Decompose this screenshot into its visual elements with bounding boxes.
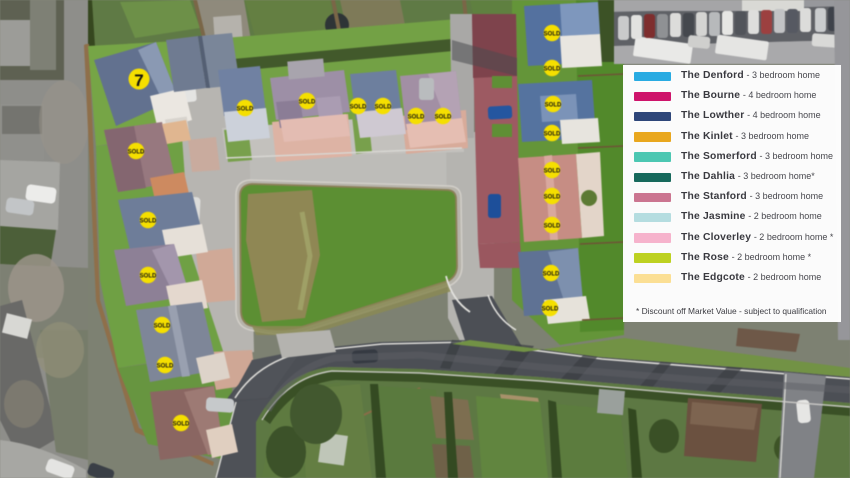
svg-text:SOLD: SOLD xyxy=(237,107,254,113)
svg-text:SOLD: SOLD xyxy=(544,195,561,201)
svg-text:SOLD: SOLD xyxy=(375,105,392,111)
svg-text:SOLD: SOLD xyxy=(173,422,190,428)
svg-text:SOLD: SOLD xyxy=(542,307,559,313)
svg-text:SOLD: SOLD xyxy=(154,324,171,330)
svg-text:SOLD: SOLD xyxy=(299,100,316,106)
svg-text:SOLD: SOLD xyxy=(544,67,561,73)
svg-text:SOLD: SOLD xyxy=(545,103,562,109)
svg-text:SOLD: SOLD xyxy=(544,132,561,138)
svg-text:SOLD: SOLD xyxy=(544,169,561,175)
svg-text:SOLD: SOLD xyxy=(128,150,145,156)
svg-text:SOLD: SOLD xyxy=(157,364,174,370)
svg-text:SOLD: SOLD xyxy=(544,224,561,230)
svg-text:SOLD: SOLD xyxy=(544,32,561,38)
svg-text:SOLD: SOLD xyxy=(140,219,157,225)
svg-text:SOLD: SOLD xyxy=(408,115,425,121)
svg-text:SOLD: SOLD xyxy=(435,115,452,121)
svg-text:7: 7 xyxy=(134,71,143,90)
svg-text:SOLD: SOLD xyxy=(140,274,157,280)
svg-text:SOLD: SOLD xyxy=(543,272,560,278)
svg-text:SOLD: SOLD xyxy=(350,105,367,111)
